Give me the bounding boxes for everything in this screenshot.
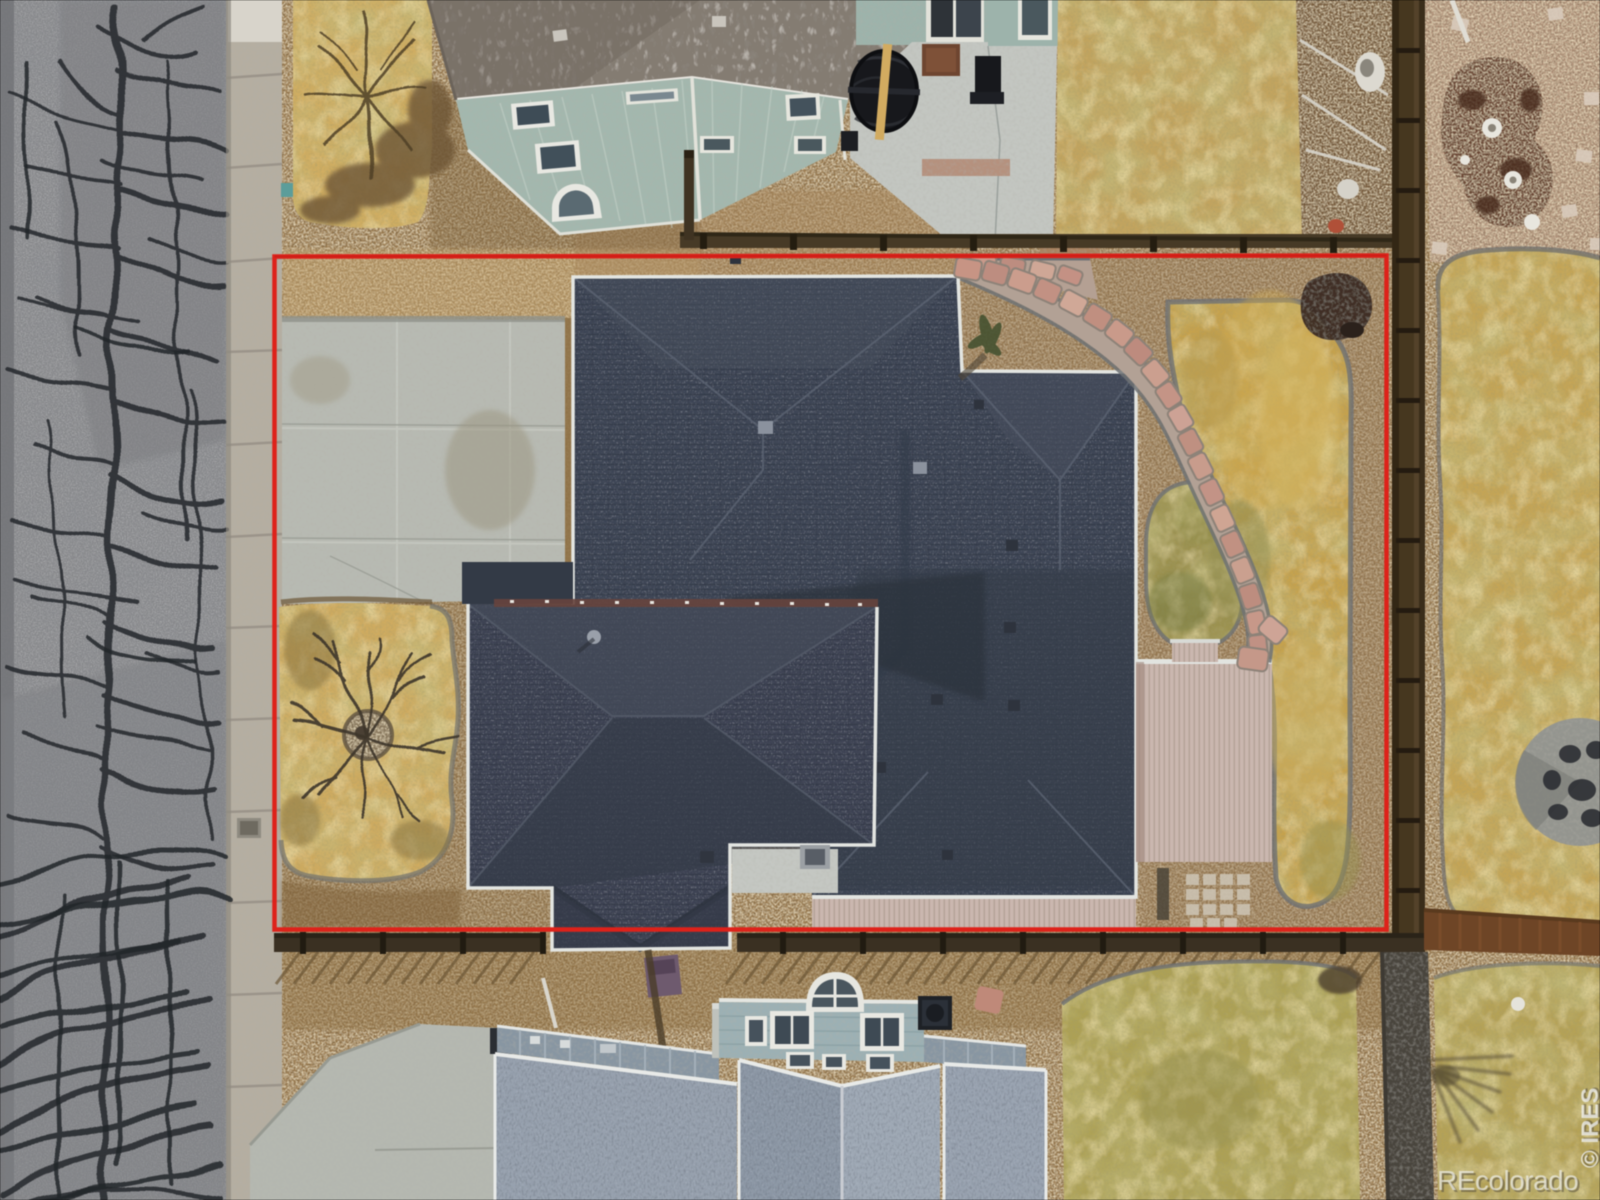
svg-text:© IRES: © IRES xyxy=(1577,1088,1600,1168)
svg-text:REcolorado: REcolorado xyxy=(1437,1165,1578,1196)
